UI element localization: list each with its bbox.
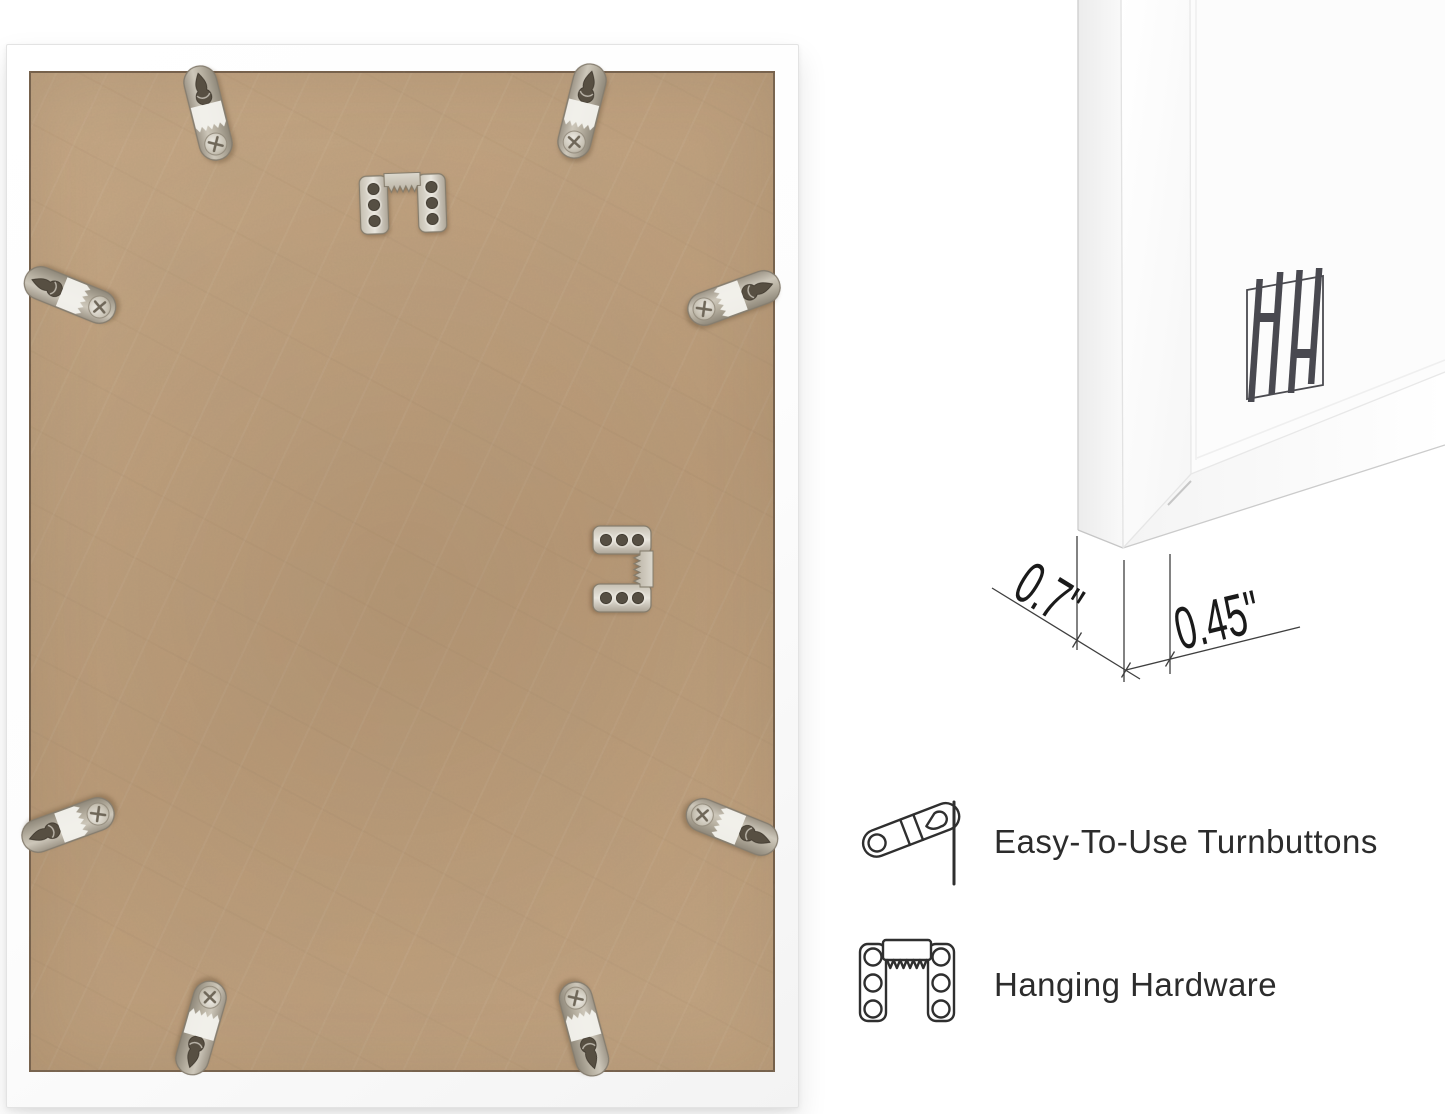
turnbutton-icon bbox=[850, 796, 962, 888]
frame-front-face-left bbox=[1121, 0, 1191, 548]
hanging-hardware-icon bbox=[858, 938, 956, 1024]
frame-corner-closeup: 0.7" 0.45" bbox=[950, 0, 1445, 700]
feature-label: Easy-To-Use Turnbuttons bbox=[994, 823, 1378, 861]
frame-back-photo bbox=[6, 44, 799, 1108]
sawtooth-hanger bbox=[358, 169, 448, 238]
feature-label: Hanging Hardware bbox=[994, 966, 1277, 1004]
face-width-measurement: 0.45" bbox=[1168, 577, 1267, 662]
product-infographic: 0.7" 0.45" Easy-To-Use Turnbuttons bbox=[0, 0, 1445, 1114]
sawtooth-hanger bbox=[589, 525, 655, 613]
depth-measurement: 0.7" bbox=[1003, 549, 1094, 640]
frame-side-face bbox=[1078, 0, 1123, 548]
